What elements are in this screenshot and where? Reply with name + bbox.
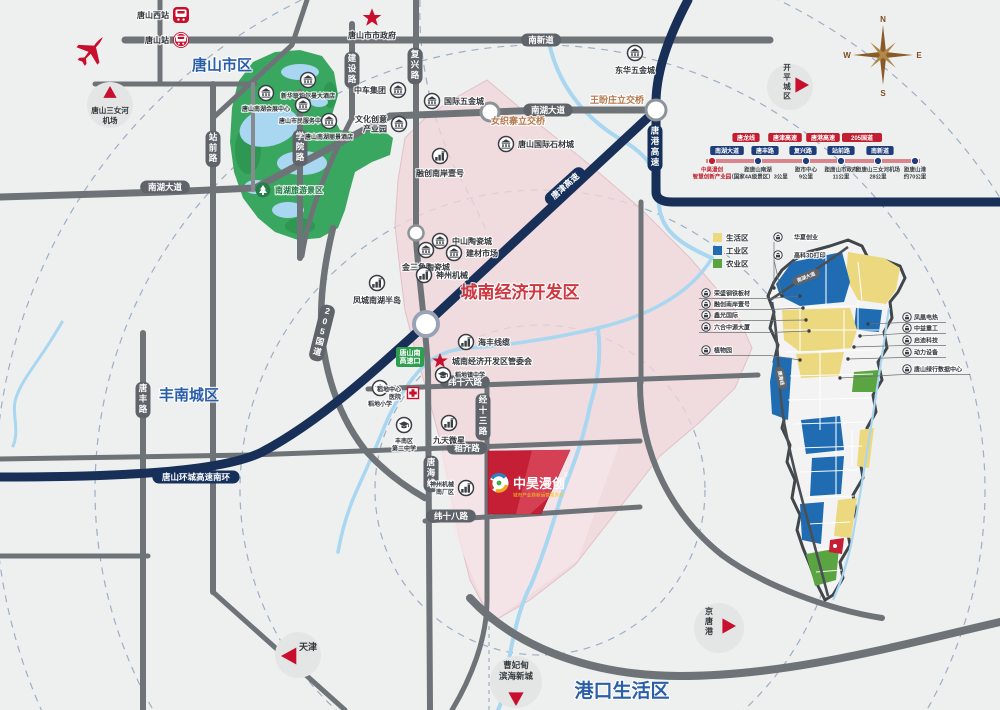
landmark-label: 东华五金城 xyxy=(615,65,655,75)
mini-landmark-icon xyxy=(774,251,782,259)
zone-callout-label: 高科3D打印 xyxy=(794,252,826,260)
svg-text:唐: 唐 xyxy=(139,383,148,393)
hospital-icon xyxy=(408,388,419,399)
compass-e: E xyxy=(916,51,922,60)
landmark-label: 丰南区 xyxy=(395,437,413,445)
landmark-label: 唐山国际石材城 xyxy=(518,139,574,149)
road-tag-blue: 站前路 xyxy=(832,147,851,155)
svg-text:兴: 兴 xyxy=(411,59,420,69)
road-label: 纬十八路 xyxy=(434,511,469,521)
landmark-label: 第二中学 xyxy=(391,445,416,453)
legend-swatch xyxy=(713,233,722,242)
area-marker-tianjin: 天津 xyxy=(275,632,321,678)
landmark-label: 国际五金城 xyxy=(444,96,484,106)
landmark-label: 产业园 xyxy=(363,124,387,134)
svg-text:复: 复 xyxy=(410,49,420,59)
metro-icon xyxy=(173,32,189,48)
zoning-site-marker xyxy=(829,538,844,554)
train-icon xyxy=(173,7,189,23)
svg-text:站: 站 xyxy=(209,132,218,142)
svg-text:速: 速 xyxy=(651,157,660,167)
building-icon xyxy=(417,268,432,283)
region-label-tangshan-urban: 唐山市区 xyxy=(192,56,252,74)
distance-station-label: 28公里 xyxy=(869,173,887,181)
legend-swatch xyxy=(713,259,722,268)
road-label: 南湖大道 xyxy=(148,182,183,192)
svg-text:港: 港 xyxy=(651,136,660,146)
landmark-icon xyxy=(628,46,643,61)
exit-sign-label: 高速口 xyxy=(400,356,421,365)
landmark-landmark: 文化创意产业园 xyxy=(355,114,407,134)
landmark-icon xyxy=(391,83,406,98)
road-label-pill: 南新道 xyxy=(521,34,561,47)
distance-station-label: 9公里 xyxy=(799,173,814,181)
building-icon xyxy=(370,276,385,291)
landmark-icon xyxy=(499,137,514,152)
distance-station-label: 距唐山南湖 xyxy=(744,166,772,174)
svg-text:海: 海 xyxy=(427,467,436,477)
exit-sign-label: 唐山南 xyxy=(400,348,421,357)
landmark-label: 唐山南湖丽景酒店 xyxy=(304,133,353,141)
svg-text:唐: 唐 xyxy=(651,126,660,136)
zone-callout-label: 荣盛钢铁板材 xyxy=(713,290,750,298)
zone-callout-label: 中益重工 xyxy=(914,325,938,333)
road-tag-red: 唐龙线 xyxy=(736,134,755,142)
school-icon xyxy=(436,368,451,383)
distance-station-label: 智慧创新产业园 xyxy=(693,173,732,181)
interchange-label: 女织寨立交桥 xyxy=(491,115,546,126)
landmark-building: 神州机械南厂区 xyxy=(430,480,474,496)
landmark-label: 神州机械 xyxy=(430,480,454,488)
svg-text:路: 路 xyxy=(296,152,305,162)
area-marker-sannvhe-airport: 唐山三女河机场 xyxy=(87,82,133,128)
building-icon xyxy=(433,149,448,164)
mini-landmark-icon xyxy=(702,300,710,308)
landmark-icon xyxy=(322,114,337,129)
svg-text:城: 城 xyxy=(783,81,791,91)
zone-callout-label: 唐山绿行数据中心 xyxy=(913,366,962,374)
road-tag-blue: 复兴路 xyxy=(793,147,813,155)
road-label: 南湖大道 xyxy=(531,105,566,115)
legend-label: 农业区 xyxy=(725,259,749,269)
svg-text:十: 十 xyxy=(479,405,488,415)
landmark-label: 九天微星 xyxy=(432,435,465,445)
road-label: 唐山环城高速南环 xyxy=(162,472,231,482)
mini-landmark-icon xyxy=(903,348,911,356)
svg-text:唐: 唐 xyxy=(705,616,713,626)
zone-callout-label: 六合中源大厦 xyxy=(714,324,751,332)
highway-label-pill: 唐港高速 xyxy=(648,125,663,172)
svg-text:区: 区 xyxy=(783,92,791,101)
landmark-icon xyxy=(447,246,462,261)
landmark-label: 稻地镇中学 xyxy=(455,371,485,379)
distance-station-dot xyxy=(754,157,761,164)
landmark-label: 唐山站 xyxy=(145,35,169,45)
road-label-pill: 南湖大道 xyxy=(140,181,190,194)
logo-registered-mark: ® xyxy=(564,472,569,479)
school-icon xyxy=(397,418,412,433)
legend-label: 工业区 xyxy=(726,246,749,256)
landmark-label: 凤城南湖半岛 xyxy=(353,295,401,305)
area-marker-caofeidian: 曹妃甸滨海新城 xyxy=(490,656,542,708)
region-label-chengnan-zone: 城南经济开发区 xyxy=(461,282,580,302)
landmark-label: 稻地小学 xyxy=(368,400,392,408)
svg-text:学: 学 xyxy=(296,131,305,141)
area-marker-jingtang-port: 京唐港 xyxy=(694,603,744,653)
distance-station-dot xyxy=(802,157,809,164)
svg-text:港: 港 xyxy=(705,626,714,636)
mini-landmark-icon xyxy=(903,313,911,321)
distance-station-dot xyxy=(874,157,881,164)
legend-label: 生活区 xyxy=(726,233,749,243)
area-marker-label: 机场 xyxy=(103,115,118,125)
road-label-pill: 南湖大道 xyxy=(523,104,573,117)
svg-text:平: 平 xyxy=(783,73,791,82)
svg-text:京: 京 xyxy=(705,606,713,616)
distance-station-label: 约70公里 xyxy=(904,173,927,181)
zone-callout-label: 华夏创业 xyxy=(794,234,818,242)
zone-callout-label: 植物园 xyxy=(713,347,732,355)
landmark-icon xyxy=(296,98,311,113)
svg-text:三: 三 xyxy=(479,416,488,426)
svg-text:前: 前 xyxy=(209,142,218,152)
highway-label-pill: 唐山环城高速南环 xyxy=(152,471,239,484)
svg-text:院: 院 xyxy=(296,141,305,151)
distance-station-label: 距市中心 xyxy=(795,166,818,174)
tree-icon xyxy=(256,183,271,198)
landmark-label: 唐山市民服务中心 xyxy=(278,117,327,125)
landmark-icon xyxy=(301,73,316,88)
road-label-pill: 站前路 xyxy=(206,131,221,168)
svg-text:路: 路 xyxy=(348,74,357,84)
svg-text:路: 路 xyxy=(209,153,218,163)
mini-landmark-icon xyxy=(903,324,911,332)
distance-station-label: 距唐山市政府 xyxy=(824,166,858,174)
distance-station-label: 中昊漫创 xyxy=(701,166,724,174)
road-label-pill: 经十三路 xyxy=(476,394,491,441)
building-icon xyxy=(459,335,474,350)
distance-station-dot xyxy=(708,157,715,164)
landmark-icon xyxy=(419,243,434,258)
map-canvas: 中昊漫创 ® 城市产业焕新运营服务商 xyxy=(0,0,1000,710)
compass-s: S xyxy=(880,89,886,98)
svg-text:开: 开 xyxy=(783,63,791,72)
distance-station-label: 11公里 xyxy=(833,173,850,181)
mini-landmark-icon xyxy=(702,289,710,297)
logo-name: 中昊漫创 xyxy=(513,476,565,491)
road-tag-blue: 南新道 xyxy=(871,147,889,155)
mini-landmark-icon xyxy=(702,311,710,319)
location-map: 中昊漫创 ® 城市产业焕新运营服务商 xyxy=(0,0,1000,710)
landmark-icon xyxy=(259,86,274,101)
mini-landmark-icon xyxy=(903,365,911,373)
landmark-icon xyxy=(392,117,407,132)
distance-station-label: 距唐山港 xyxy=(904,166,927,174)
building-icon xyxy=(442,416,457,431)
landmark-label: 中车集团 xyxy=(354,85,386,95)
road-tag-blue: 唐丰路 xyxy=(755,147,775,155)
landmark-label: 建材市场 xyxy=(465,248,498,258)
compass-n: N xyxy=(880,15,886,24)
zone-callout-label: 融创南岸壹号 xyxy=(714,301,750,309)
svg-text:高: 高 xyxy=(651,147,660,157)
svg-text:路: 路 xyxy=(411,70,420,80)
landmark-label: 唐山市市政府 xyxy=(348,30,396,40)
mini-landmark-icon xyxy=(903,336,911,344)
distance-station-label: 距唐山三女河机场 xyxy=(856,166,901,174)
svg-text:建: 建 xyxy=(347,53,357,63)
area-marker-label: 滨海新城 xyxy=(499,671,534,681)
mini-landmark-icon xyxy=(702,346,710,354)
landmark-icon xyxy=(425,94,440,109)
area-marker-label: 唐山三女河 xyxy=(91,105,129,115)
road-tag-blue: 南湖大道 xyxy=(715,147,739,155)
distance-station-dot xyxy=(911,157,918,164)
landmark-label: 神州机械 xyxy=(436,270,468,280)
expressway-exit-sign: 唐山南高速口 xyxy=(396,347,424,367)
road-label: 南新道 xyxy=(528,35,554,45)
area-marker-label: 天津 xyxy=(299,641,317,652)
road-tag-red: 205国道 xyxy=(851,134,873,142)
distance-station-dot xyxy=(837,157,844,164)
zone-callout-label: 启迪科技 xyxy=(914,337,939,345)
interchange-label: 王盼庄立交桥 xyxy=(590,94,645,105)
landmark-label: 唐山西站 xyxy=(137,10,169,20)
landmark-label: 海丰线缆 xyxy=(478,337,510,347)
road-label-pill: 复兴路 xyxy=(408,48,423,85)
landmark-label: 稻地中心 xyxy=(377,385,401,393)
svg-text:丰: 丰 xyxy=(139,393,148,403)
road-tag-red: 唐津高速 xyxy=(772,134,797,142)
building-icon xyxy=(459,481,474,496)
zone-callout-label: 鑫光国际 xyxy=(713,312,738,320)
landmark-icon xyxy=(433,234,448,249)
road-label-pill: 纬十八路 xyxy=(426,510,476,523)
logo-tagline: 城市产业焕新运营服务商 xyxy=(513,492,564,499)
landmark-label: 南湖旅游景区 xyxy=(275,185,323,195)
svg-text:设: 设 xyxy=(348,63,357,73)
svg-text:路: 路 xyxy=(479,426,488,436)
mini-landmark-icon xyxy=(702,323,710,331)
region-label-port-life-area: 港口生活区 xyxy=(574,679,669,702)
landmark-label: 城南经济开发区管委会 xyxy=(452,356,532,366)
area-marker-label: 曹妃甸 xyxy=(503,660,529,670)
road-label-pill: 唐丰路 xyxy=(136,382,151,419)
landmark-label: 文化创意 xyxy=(355,114,387,124)
zone-callout-label: 凤凰电热 xyxy=(914,314,938,322)
mini-landmark-icon xyxy=(774,233,782,241)
zone-callout-label: 动力设备 xyxy=(914,349,939,357)
compass-w: W xyxy=(843,51,851,60)
svg-text:唐: 唐 xyxy=(427,457,436,467)
landmark-label: 南厂区 xyxy=(436,488,454,496)
svg-text:路: 路 xyxy=(139,404,148,414)
landmark-label: 中山陶瓷城 xyxy=(452,236,492,246)
distance-station-label: （国家4A级景区）3公里 xyxy=(728,173,788,181)
landmark-label: 医院 xyxy=(389,393,401,401)
region-label-fengnan-urban: 丰南城区 xyxy=(159,386,219,404)
landmark-label: 融创南岸壹号 xyxy=(416,168,464,178)
legend-swatch xyxy=(713,246,722,255)
svg-text:经: 经 xyxy=(479,395,488,405)
road-tag-red: 唐港高速 xyxy=(810,134,835,142)
landmark-label: 唐山南湖会展中心 xyxy=(241,105,290,113)
road-label-pill: 建设路 xyxy=(345,52,360,89)
